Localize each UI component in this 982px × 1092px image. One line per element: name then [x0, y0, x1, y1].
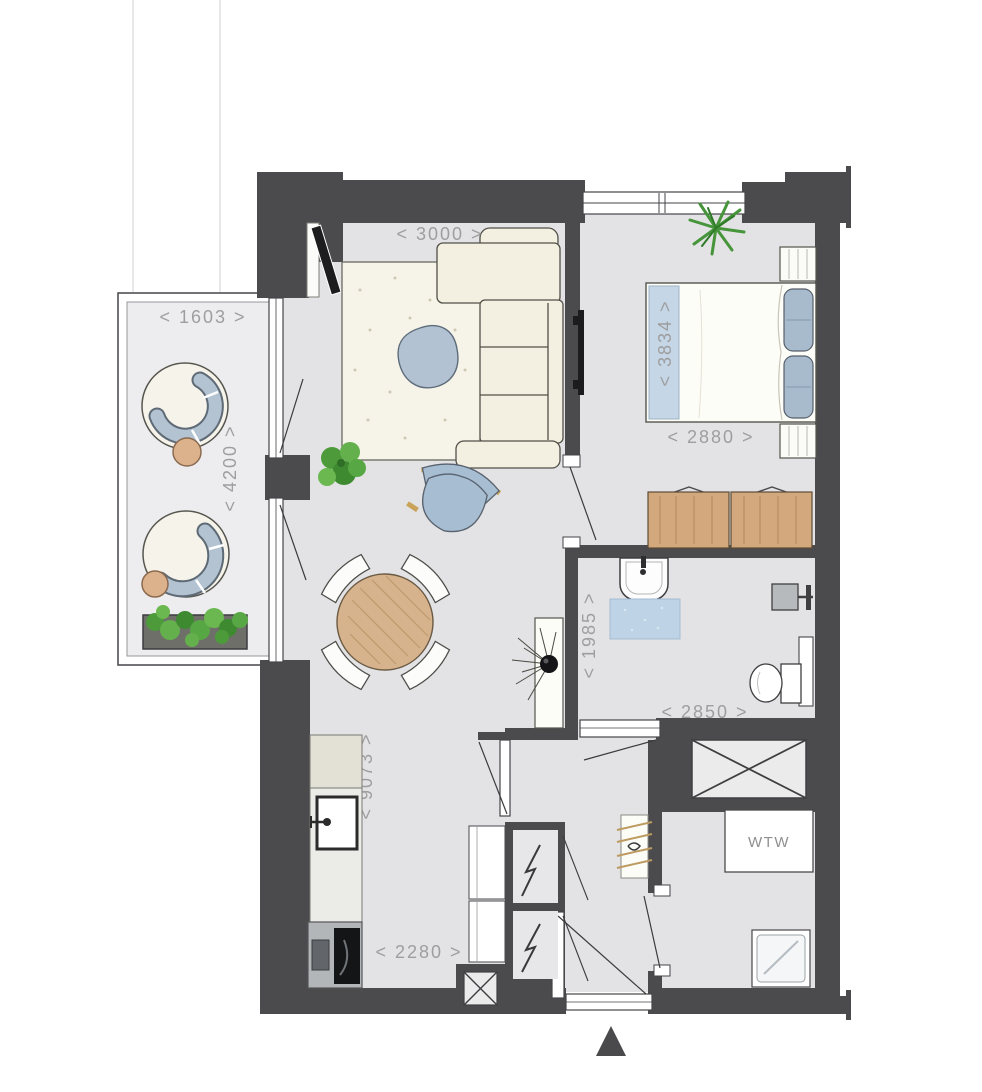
kitchen-cabinet — [310, 735, 362, 788]
balcony: < 1603 > < 4200 > — [118, 293, 282, 665]
dimension-balcony-width: < 1603 > — [159, 307, 246, 327]
cooktop-icon — [308, 922, 362, 988]
wtw-unit: WTW — [725, 810, 813, 872]
dimension-living-width: < 3000 > — [396, 224, 483, 244]
dimension-kitchen-width: < 2280 > — [375, 942, 462, 962]
wall-bathroom-left — [565, 540, 578, 740]
wall-balcony-pillar — [265, 455, 310, 500]
floor-plan-drawing: < 1603 > < 4200 > — [0, 0, 982, 1092]
dining-table — [337, 574, 433, 670]
side-table — [173, 438, 201, 466]
vase-highlight — [544, 659, 549, 664]
dimension-bedroom-width: < 2880 > — [667, 427, 754, 447]
kitchen-sink — [311, 797, 357, 849]
wall-fin-bottom — [846, 990, 851, 1020]
wall-fin-top — [846, 166, 851, 228]
vase-icon — [540, 655, 558, 673]
balcony-floor — [127, 302, 273, 656]
meter-compartment — [513, 911, 558, 979]
wall-hall-top — [505, 728, 578, 740]
floor-plan-page: < 1603 > < 4200 > — [0, 0, 982, 1092]
wall-left-lower — [260, 660, 310, 1014]
tap-icon — [641, 556, 646, 568]
dimension-balcony-depth: < 4200 > — [220, 424, 240, 511]
dimension-bed-length: < 3834 > — [655, 299, 675, 386]
wall-bottom-right — [652, 988, 840, 1014]
wall-living-bedroom — [565, 223, 580, 465]
cupboard-door-leaf — [469, 901, 505, 962]
coat-rack — [617, 815, 652, 878]
side-table — [142, 571, 168, 597]
wall-top — [300, 180, 585, 223]
washbasin — [620, 556, 668, 600]
wall-wtw-left-upper — [648, 812, 662, 893]
lounge-chair — [142, 363, 228, 449]
shower-icon — [772, 584, 813, 610]
washing-machine-icon — [752, 930, 810, 987]
cupboard-door-leaf — [469, 826, 505, 899]
wtw-label: WTW — [748, 834, 790, 851]
dimension-bathroom-width: < 2850 > — [661, 702, 748, 722]
shaft-x-small — [464, 972, 497, 1005]
bath-mat — [610, 599, 680, 639]
coffee-table — [398, 326, 458, 388]
shaft-x — [692, 740, 806, 798]
wall-top-right-block — [785, 172, 848, 223]
wall-right — [815, 223, 840, 1014]
meter-compartment — [513, 830, 558, 903]
bedroom-window — [583, 192, 745, 214]
dimension-bathroom-depth: < 1985 > — [579, 591, 599, 678]
wall-top-right — [742, 182, 790, 223]
